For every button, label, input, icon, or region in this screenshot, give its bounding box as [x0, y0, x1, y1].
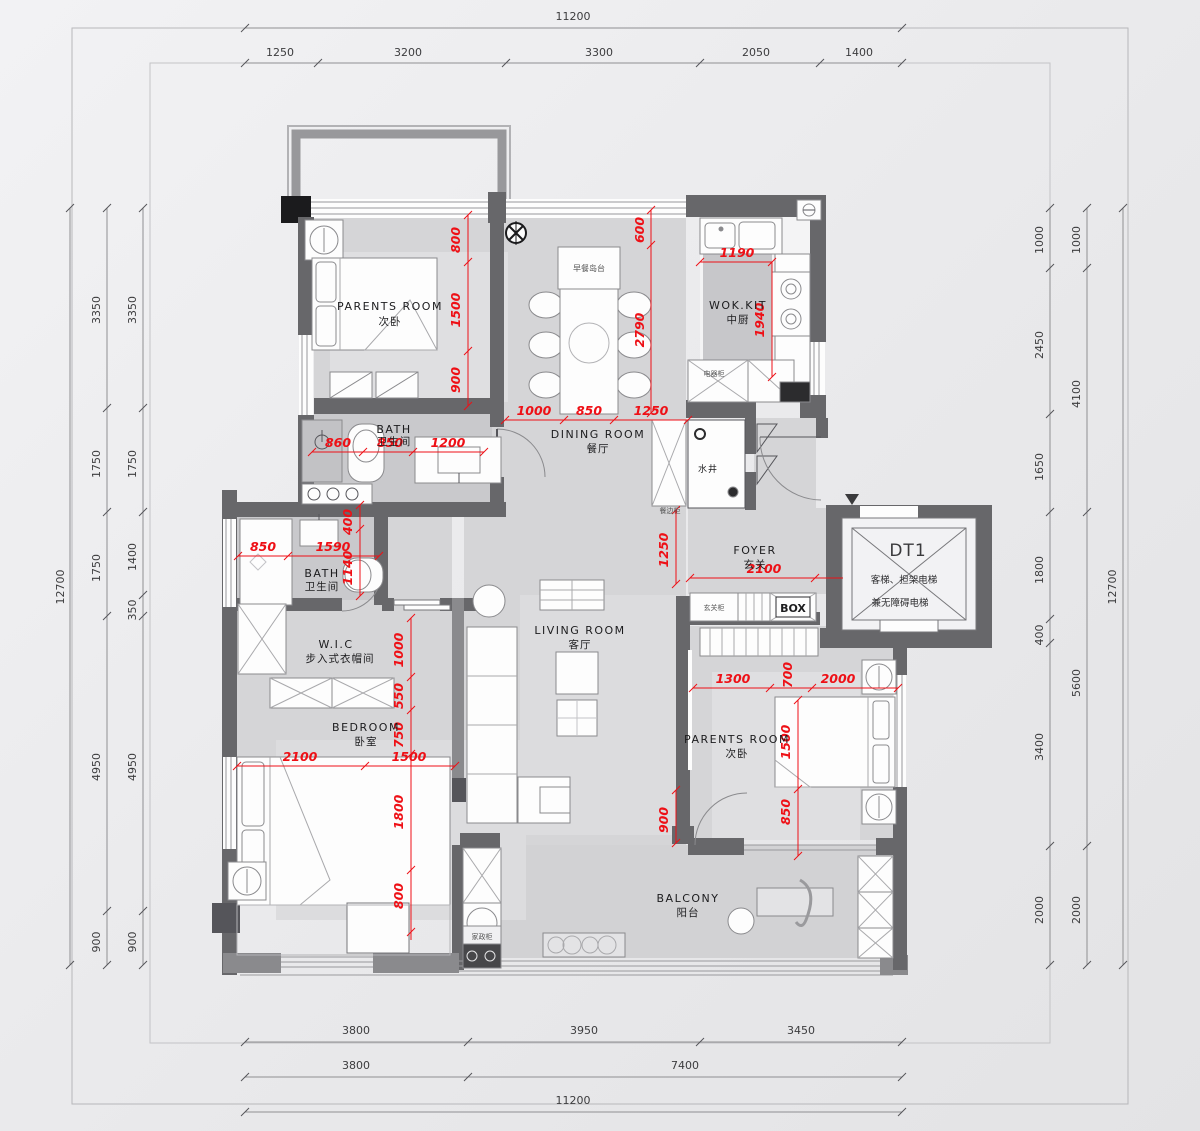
room-label-bath1-cn: 卫生间	[377, 435, 412, 448]
elevator-desc-2: 兼无障碍电梯	[871, 597, 929, 609]
dim-left-seg: 900	[90, 932, 103, 953]
red-dim: 2000	[821, 671, 856, 686]
room-label-foyer: FOYER	[733, 544, 776, 557]
red-dim: 1800	[391, 794, 406, 829]
room-label-parents-right: PARENTS ROOM	[684, 733, 790, 746]
dim-right-seg: 2450	[1033, 331, 1046, 359]
dim-right-seg: 1650	[1033, 453, 1046, 481]
room-label-bath2-cn: 卫生间	[305, 580, 340, 593]
red-dim: 1140	[340, 550, 355, 585]
window-bedroom-south	[281, 957, 373, 967]
red-dim: 800	[391, 883, 406, 909]
room-label-dining-cn: 餐厅	[587, 442, 610, 455]
dim-bottom-seg: 3950	[570, 1024, 598, 1037]
dim-right-seg: 2000	[1033, 896, 1046, 924]
label-entry-cabinet: 玄关柜	[704, 603, 725, 612]
room-label-bath2: BATH	[304, 567, 339, 580]
room-label-bath1: BATH	[376, 423, 411, 436]
red-dim: 850	[250, 539, 276, 554]
red-dim: 600	[632, 217, 647, 243]
red-dim: 550	[391, 683, 406, 709]
room-label-bedroom-cn: 卧室	[355, 735, 378, 748]
dim-left-seg: 1750	[90, 450, 103, 478]
red-dim: 900	[448, 367, 463, 393]
dim-left-seg: 1400	[126, 543, 139, 571]
dim-bottom-seg: 3800	[342, 1059, 370, 1072]
window-top-parents	[311, 199, 491, 218]
red-dim: 1250	[634, 403, 669, 418]
window-parents-left	[299, 335, 313, 415]
red-dim: 1590	[316, 539, 351, 554]
floor-drain-icon	[506, 221, 526, 245]
dim-top-seg: 3200	[394, 46, 422, 59]
room-label-living: LIVING ROOM	[534, 624, 625, 637]
label-sideboard: 餐边柜	[660, 506, 681, 515]
dim-bottom-total: 11200	[556, 1094, 591, 1107]
dim-right-seg: 4100	[1070, 380, 1083, 408]
room-label-parents-left-cn: 次卧	[379, 315, 402, 328]
room-label-parents-left: PARENTS ROOM	[337, 300, 443, 313]
dim-top-seg: 2050	[742, 46, 770, 59]
window-top-dining	[506, 199, 686, 218]
balcony-rail	[240, 961, 893, 975]
room-label-living-cn: 客厅	[569, 638, 592, 651]
red-dim: 850	[576, 403, 602, 418]
red-dim: 1250	[656, 532, 671, 567]
floor-plan-drawing: 11200 1250 3200 3300 2050 1400 3800 3950…	[0, 0, 1200, 1131]
room-label-bedroom: BEDROOM	[332, 721, 400, 734]
red-dim: 2100	[283, 749, 318, 764]
dim-right-seg: 1800	[1033, 556, 1046, 584]
red-dim: 1000	[391, 632, 406, 667]
room-label-foyer-cn: 玄关	[744, 558, 767, 571]
dim-left-seg: 4950	[126, 753, 139, 781]
room-label-wok-kit-cn: 中厨	[727, 313, 750, 326]
room-label-shaft: 水井	[698, 463, 718, 475]
laundry-cabinets	[463, 848, 501, 968]
room-label-dining: DINING ROOM	[551, 428, 645, 441]
dim-left-seg: 1750	[90, 554, 103, 582]
label-laundry-cabinet: 家政柜	[472, 932, 493, 941]
dim-top-seg: 1400	[845, 46, 873, 59]
red-dim: 850	[778, 799, 793, 825]
label-breakfast-island: 早餐岛台	[573, 263, 605, 273]
dim-bottom-seg: 7400	[671, 1059, 699, 1072]
red-dim: 1000	[517, 403, 552, 418]
window-kitchen-east	[811, 342, 825, 395]
room-label-balcony-cn: 阳台	[677, 906, 700, 919]
dim-left-seg: 900	[126, 932, 139, 953]
dim-top-seg: 3300	[585, 46, 613, 59]
label-box: BOX	[780, 602, 806, 615]
room-label-balcony: BALCONY	[657, 892, 720, 905]
dim-top-total: 11200	[556, 10, 591, 23]
dim-left-seg: 3350	[90, 296, 103, 324]
dim-right-seg: 1000	[1070, 226, 1083, 254]
dim-right-seg: 3400	[1033, 733, 1046, 761]
dim-bottom-seg: 3450	[787, 1024, 815, 1037]
dim-top-seg: 1250	[266, 46, 294, 59]
room-label-wok-kit: WOK.KIT	[709, 299, 767, 312]
elevator-door-marker	[845, 494, 859, 505]
dim-right-seg: 1000	[1033, 226, 1046, 254]
floor-plan-sheet: 11200 1250 3200 3300 2050 1400 3800 3950…	[0, 0, 1200, 1131]
dim-right-seg: 400	[1033, 625, 1046, 646]
room-label-wic-cn: 步入式衣帽间	[306, 652, 375, 665]
dim-left-seg: 3350	[126, 296, 139, 324]
red-dim: 1500	[448, 292, 463, 327]
label-appliance-cabinet: 电器柜	[704, 369, 725, 378]
red-dim: 400	[340, 509, 355, 536]
dim-right-total: 12700	[1106, 570, 1119, 605]
dim-left-seg: 4950	[90, 753, 103, 781]
room-label-parents-right-cn: 次卧	[726, 747, 749, 760]
dim-left-seg: 350	[126, 600, 139, 621]
red-dim: 1300	[716, 671, 751, 686]
red-dim: 860	[325, 435, 351, 450]
elevator-code: DT1	[889, 541, 926, 561]
room-label-wic: W.I.C	[318, 638, 353, 651]
red-dim: 1190	[720, 245, 755, 260]
dim-right-seg: 5600	[1070, 669, 1083, 697]
window-bedroom-west	[223, 757, 236, 849]
red-dim: 800	[448, 227, 463, 253]
dim-bottom-seg: 3800	[342, 1024, 370, 1037]
dim-right-seg: 2000	[1070, 896, 1083, 924]
bed-bedroom	[228, 757, 450, 955]
red-dim: 2790	[632, 312, 647, 347]
window-bath2-west	[223, 519, 236, 607]
red-dim: 700	[780, 662, 795, 688]
red-dim: 1500	[392, 749, 427, 764]
dim-left-seg: 1750	[126, 450, 139, 478]
red-dim: 900	[656, 807, 671, 833]
red-dim: 1200	[431, 435, 466, 450]
elevator-desc-1: 客梯、担架电梯	[871, 574, 938, 586]
dim-left-total: 12700	[54, 570, 67, 605]
